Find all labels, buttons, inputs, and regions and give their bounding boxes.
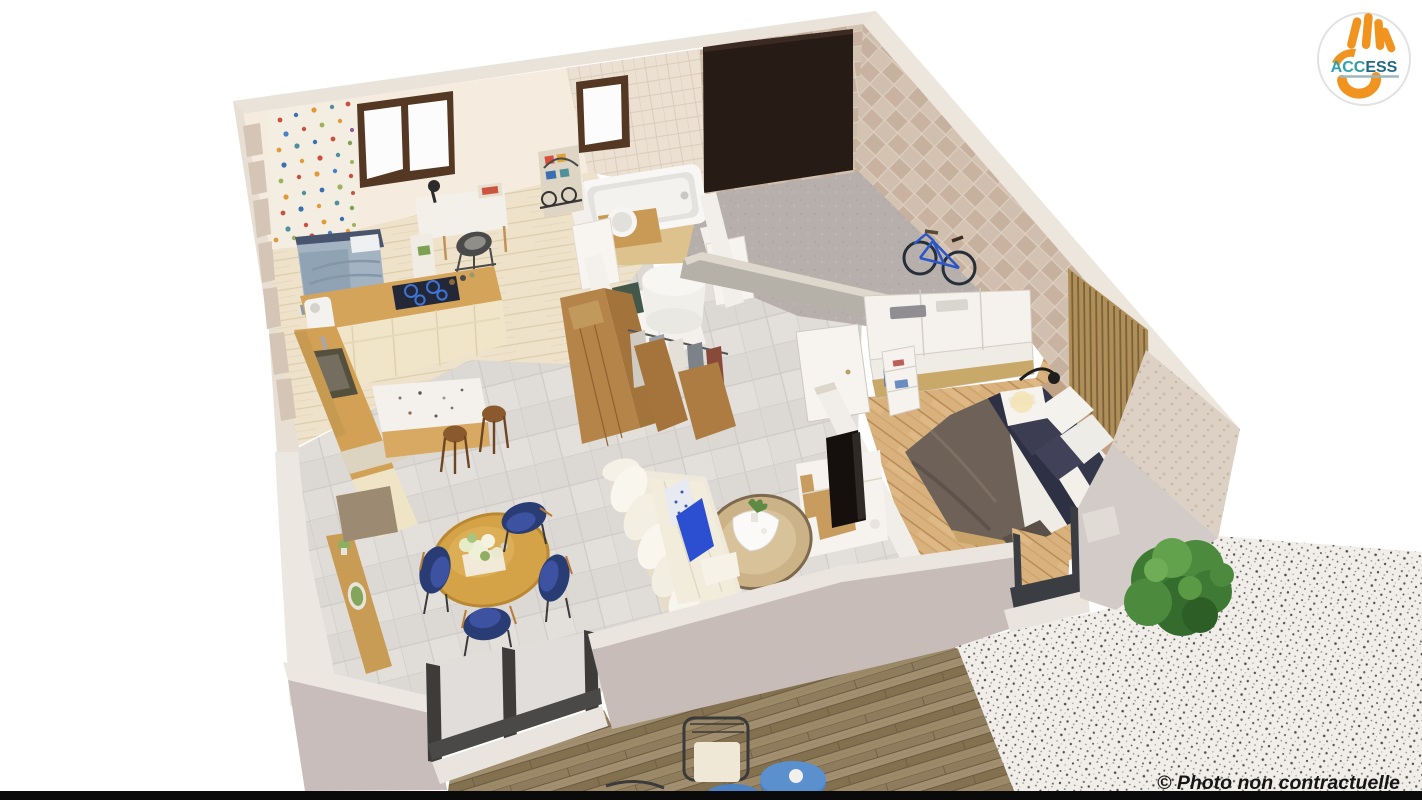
svg-text:© Photo non contractuelle: © Photo non contractuelle: [1157, 772, 1400, 794]
svg-text:ACCESS: ACCESS: [1331, 59, 1398, 76]
